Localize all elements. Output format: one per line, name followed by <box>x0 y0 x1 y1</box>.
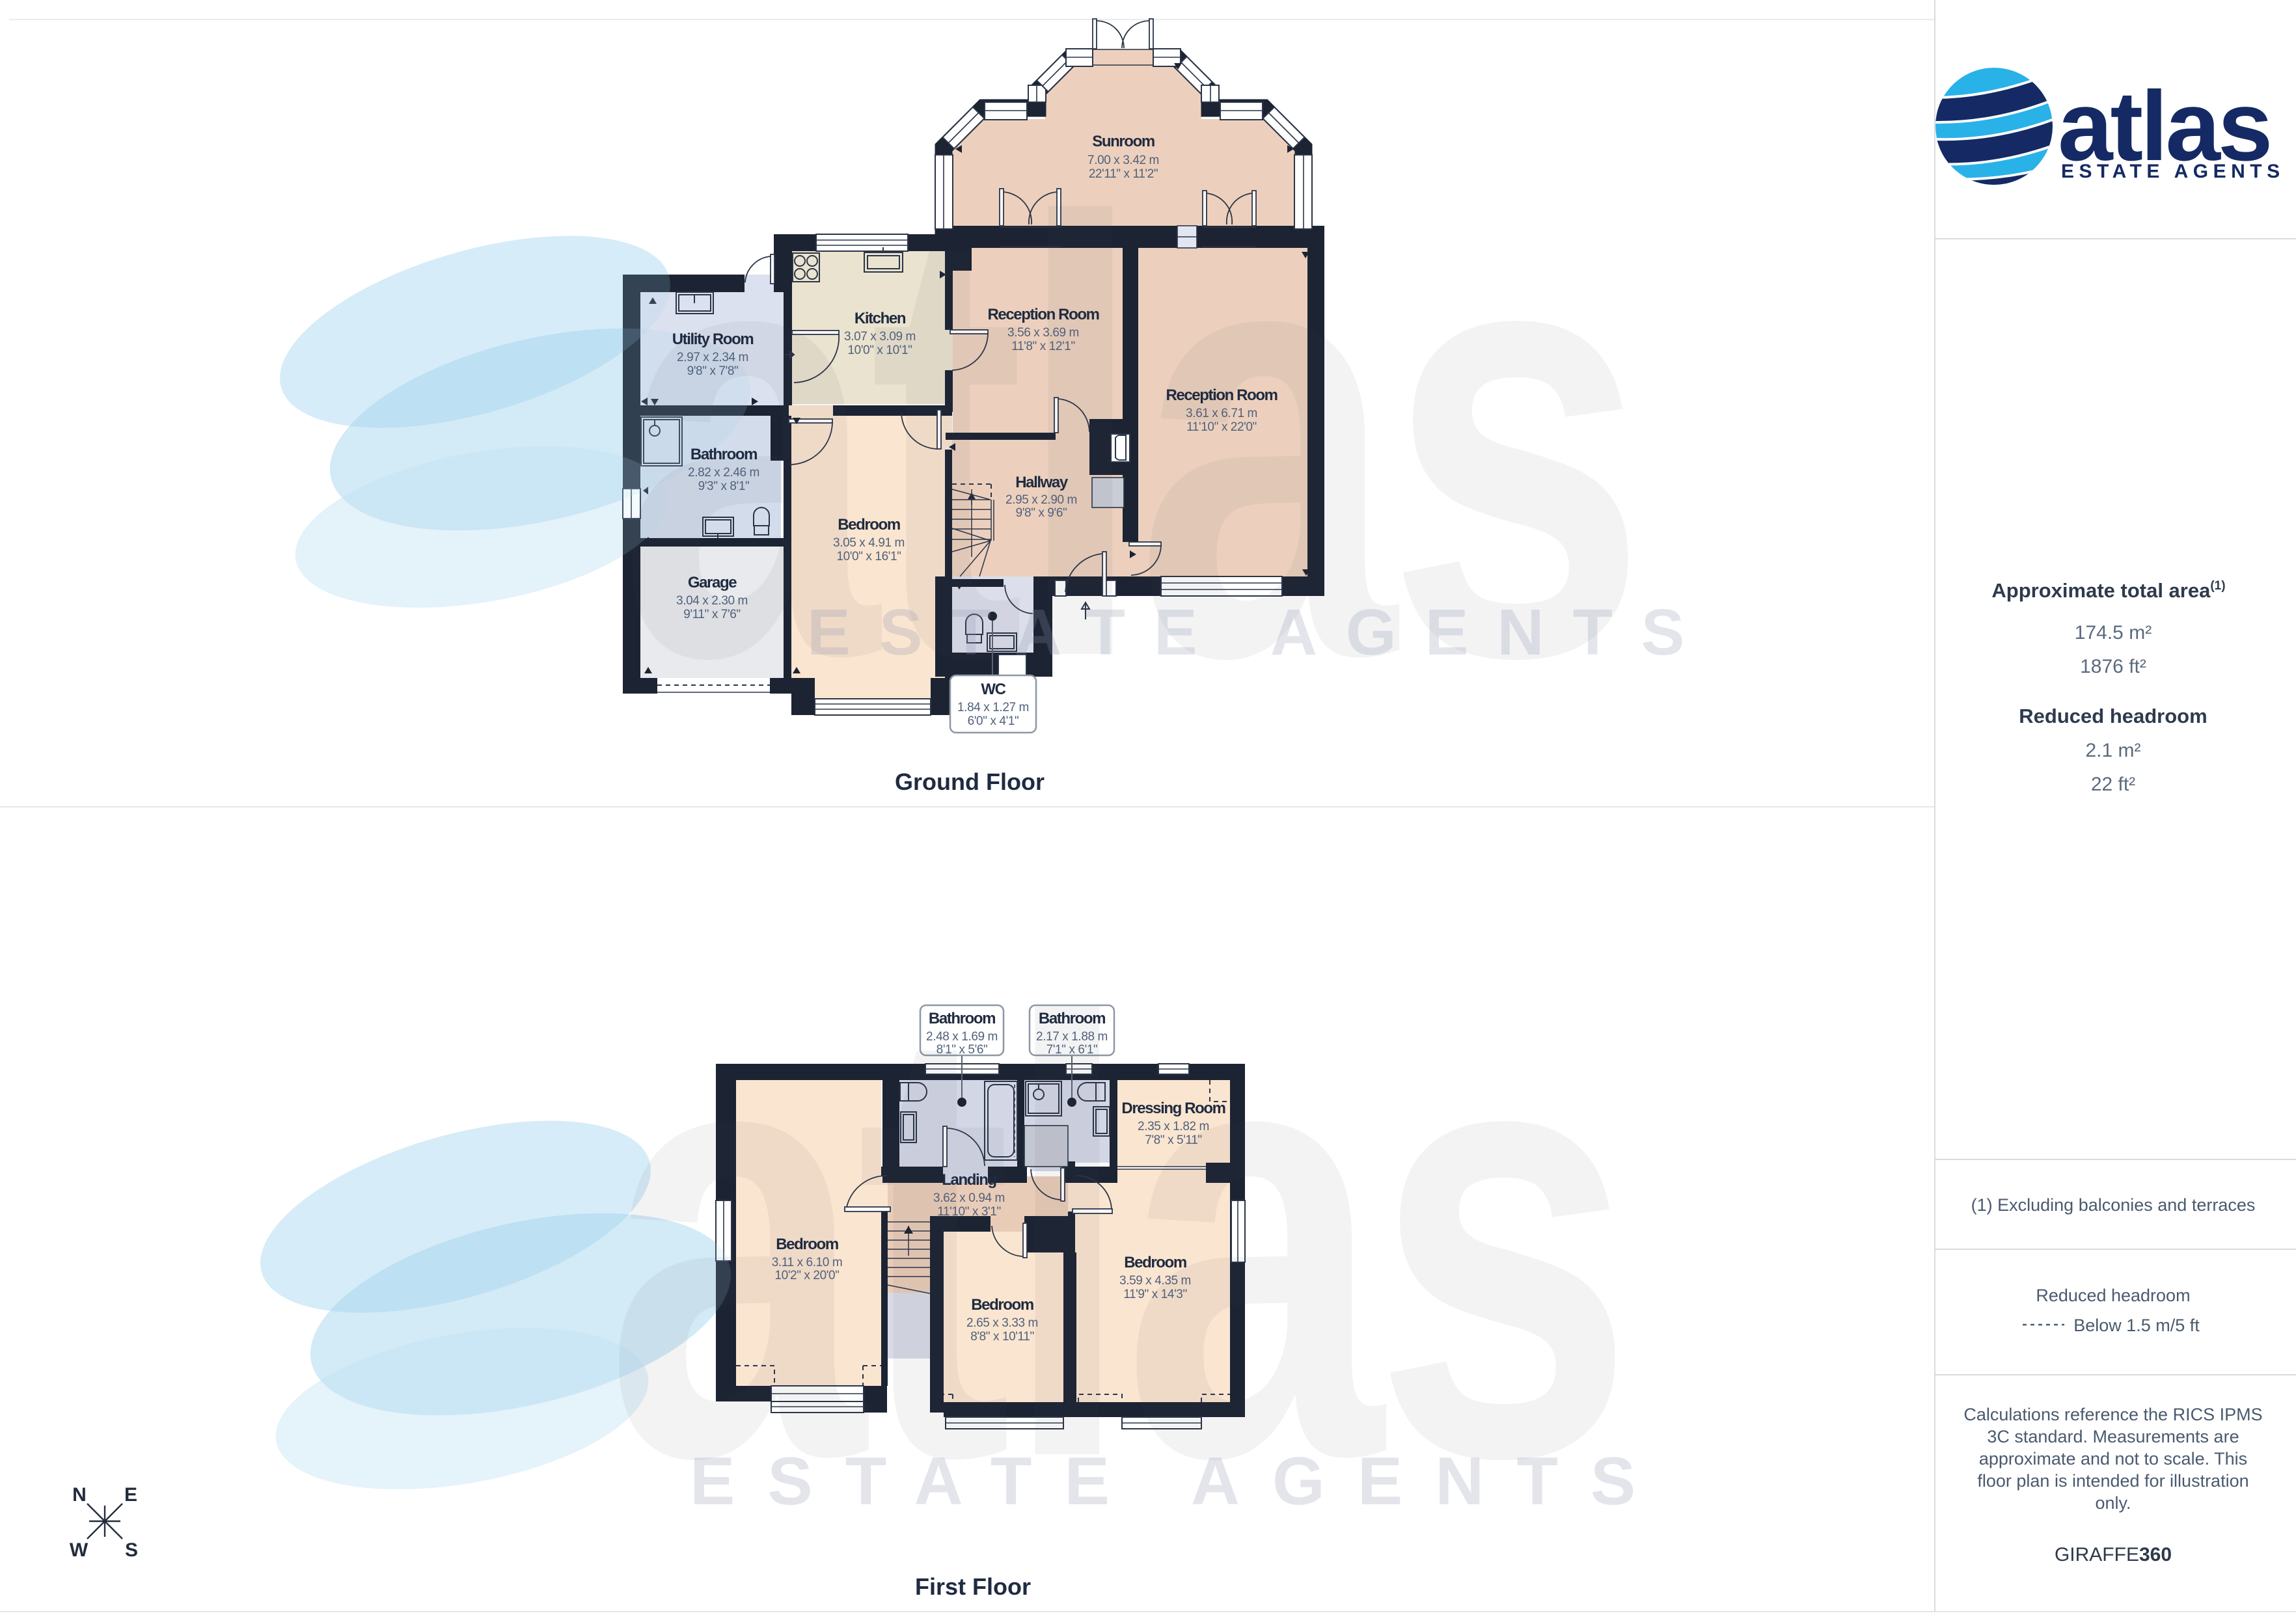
svg-text:approximate and not to scale.: approximate and not to scale. This <box>1979 1449 2247 1468</box>
svg-text:9'8" x 7'8": 9'8" x 7'8" <box>687 364 739 378</box>
svg-text:Kitchen: Kitchen <box>854 310 906 327</box>
svg-text:Reception Room: Reception Room <box>1166 386 1277 404</box>
svg-text:2.95 x 2.90 m: 2.95 x 2.90 m <box>1005 493 1077 507</box>
svg-text:Landing: Landing <box>942 1171 996 1189</box>
svg-text:2.1 m²: 2.1 m² <box>2085 740 2140 761</box>
svg-text:3C standard. Measurements are: 3C standard. Measurements are <box>1987 1427 2239 1446</box>
svg-text:Reduced headroom: Reduced headroom <box>2036 1286 2190 1305</box>
svg-text:8'8" x 10'11": 8'8" x 10'11" <box>970 1330 1034 1344</box>
svg-text:7'1" x 6'1": 7'1" x 6'1" <box>1046 1043 1098 1057</box>
svg-text:3.05 x 4.91 m: 3.05 x 4.91 m <box>833 536 905 550</box>
svg-text:Bathroom: Bathroom <box>929 1010 995 1027</box>
svg-text:10'0" x 10'1": 10'0" x 10'1" <box>847 344 912 357</box>
svg-text:Bedroom: Bedroom <box>776 1236 838 1253</box>
svg-text:Reception Room: Reception Room <box>987 306 1099 323</box>
svg-text:10'0" x 16'1": 10'0" x 16'1" <box>836 550 901 563</box>
svg-text:Bathroom: Bathroom <box>690 446 757 463</box>
svg-text:Bedroom: Bedroom <box>1124 1254 1186 1271</box>
svg-text:Reduced headroom: Reduced headroom <box>2019 705 2207 727</box>
svg-text:Sunroom: Sunroom <box>1092 133 1155 150</box>
svg-text:3.04 x 2.30 m: 3.04 x 2.30 m <box>676 594 748 608</box>
svg-text:Utility Room: Utility Room <box>672 331 754 348</box>
svg-text:Bathroom: Bathroom <box>1039 1010 1105 1027</box>
svg-text:Bedroom: Bedroom <box>971 1296 1033 1314</box>
svg-text:(1) Excluding balconies and te: (1) Excluding balconies and terraces <box>1971 1195 2256 1215</box>
svg-text:10'2" x 20'0": 10'2" x 20'0" <box>774 1269 839 1282</box>
svg-text:11'9" x 14'3": 11'9" x 14'3" <box>1123 1288 1187 1301</box>
svg-text:3.07 x 3.09 m: 3.07 x 3.09 m <box>844 330 916 344</box>
svg-text:2.65 x 3.33 m: 2.65 x 3.33 m <box>966 1316 1038 1330</box>
svg-text:9'8" x 9'6": 9'8" x 9'6" <box>1016 506 1067 520</box>
svg-text:floor plan is intended for ill: floor plan is intended for illustration <box>1977 1471 2248 1491</box>
svg-text:ESTATE AGENTS: ESTATE AGENTS <box>807 596 1713 669</box>
svg-text:9'11" x 7'6": 9'11" x 7'6" <box>683 608 740 621</box>
svg-text:Bedroom: Bedroom <box>838 516 900 534</box>
svg-text:Calculations reference the RIC: Calculations reference the RICS IPMS <box>1963 1405 2262 1424</box>
svg-text:WC: WC <box>981 681 1005 698</box>
svg-text:11'10" x 22'0": 11'10" x 22'0" <box>1186 420 1257 434</box>
svg-text:Below 1.5 m/5 ft: Below 1.5 m/5 ft <box>2073 1316 2200 1335</box>
svg-text:1.84 x 1.27 m: 1.84 x 1.27 m <box>957 701 1029 714</box>
svg-text:only.: only. <box>2095 1493 2131 1513</box>
svg-text:E: E <box>124 1484 137 1506</box>
svg-text:Ground Floor: Ground Floor <box>895 768 1045 795</box>
svg-text:Approximate total area(1): Approximate total area(1) <box>1991 579 2225 602</box>
svg-text:6'0" x 4'1": 6'0" x 4'1" <box>968 714 1019 728</box>
svg-text:3.56 x 3.69 m: 3.56 x 3.69 m <box>1007 326 1079 340</box>
svg-text:2.48 x 1.69 m: 2.48 x 1.69 m <box>926 1030 998 1044</box>
svg-text:174.5 m²: 174.5 m² <box>2075 622 2152 643</box>
svg-text:atlas: atlas <box>618 94 1637 785</box>
svg-text:11'10" x 3'1": 11'10" x 3'1" <box>937 1205 1001 1219</box>
svg-text:3.62 x 0.94 m: 3.62 x 0.94 m <box>933 1191 1005 1205</box>
svg-text:ESTATE AGENTS: ESTATE AGENTS <box>690 1444 1668 1519</box>
svg-text:Hallway: Hallway <box>1015 474 1069 491</box>
svg-text:2.82 x 2.46 m: 2.82 x 2.46 m <box>688 466 759 480</box>
svg-text:3.61 x 6.71 m: 3.61 x 6.71 m <box>1186 407 1257 420</box>
svg-text:7'8" x 5'11": 7'8" x 5'11" <box>1145 1133 1201 1147</box>
svg-text:W: W <box>70 1539 89 1561</box>
svg-text:GIRAFFE360: GIRAFFE360 <box>2055 1544 2172 1565</box>
svg-text:N: N <box>72 1484 87 1506</box>
svg-text:2.97 x 2.34 m: 2.97 x 2.34 m <box>677 351 748 364</box>
svg-text:3.59 x 4.35 m: 3.59 x 4.35 m <box>1119 1274 1191 1288</box>
svg-text:1876 ft²: 1876 ft² <box>2080 656 2146 677</box>
svg-text:ESTATE AGENTS: ESTATE AGENTS <box>2061 161 2285 182</box>
svg-text:S: S <box>125 1539 138 1561</box>
svg-text:2.35 x 1.82 m: 2.35 x 1.82 m <box>1138 1120 1209 1133</box>
svg-text:First Floor: First Floor <box>915 1573 1031 1600</box>
svg-text:22'11" x 11'2": 22'11" x 11'2" <box>1089 167 1158 181</box>
svg-text:2.17 x 1.88 m: 2.17 x 1.88 m <box>1036 1030 1108 1044</box>
svg-text:9'3" x 8'1": 9'3" x 8'1" <box>698 480 750 493</box>
svg-text:22 ft²: 22 ft² <box>2091 774 2135 795</box>
svg-text:8'1" x 5'6": 8'1" x 5'6" <box>936 1043 988 1057</box>
svg-text:Garage: Garage <box>688 574 737 591</box>
svg-text:3.11 x 6.10 m: 3.11 x 6.10 m <box>772 1256 843 1269</box>
svg-text:7.00 x 3.42 m: 7.00 x 3.42 m <box>1087 154 1159 167</box>
svg-text:11'8" x 12'1": 11'8" x 12'1" <box>1011 340 1075 353</box>
svg-text:Dressing Room: Dressing Room <box>1121 1100 1225 1117</box>
